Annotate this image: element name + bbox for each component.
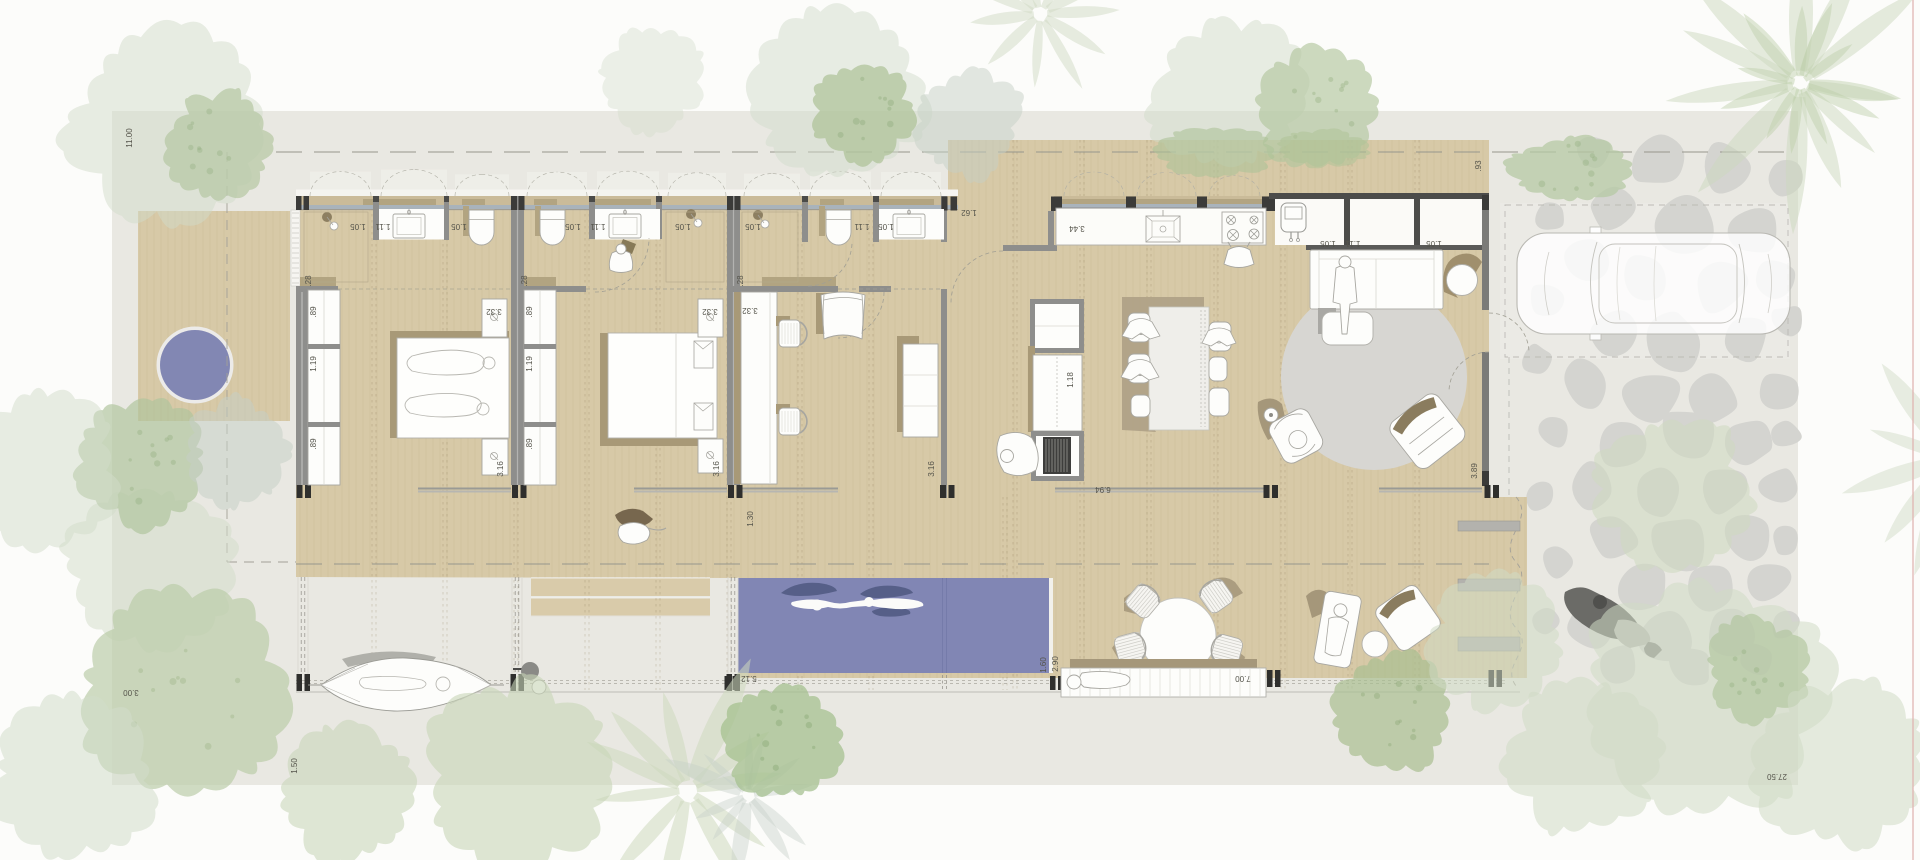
svg-text:.89: .89 bbox=[525, 438, 534, 450]
svg-text:1.50: 1.50 bbox=[290, 758, 299, 774]
svg-text:.89: .89 bbox=[525, 306, 534, 318]
svg-text:1.05: 1.05 bbox=[350, 222, 366, 231]
svg-text:3.44: 3.44 bbox=[1069, 224, 1085, 233]
svg-text:1.05: 1.05 bbox=[451, 222, 467, 231]
svg-text:.28: .28 bbox=[736, 275, 745, 287]
svg-text:.93: .93 bbox=[1474, 160, 1483, 172]
svg-text:3.89: 3.89 bbox=[1470, 463, 1479, 479]
svg-text:.89: .89 bbox=[309, 306, 318, 318]
svg-text:3.16: 3.16 bbox=[927, 461, 936, 477]
svg-text:1.05: 1.05 bbox=[878, 222, 894, 231]
svg-text:.89: .89 bbox=[309, 438, 318, 450]
svg-text:1.11: 1.11 bbox=[854, 222, 870, 231]
svg-text:1.30: 1.30 bbox=[746, 511, 755, 527]
svg-text:1.05: 1.05 bbox=[1320, 239, 1336, 248]
svg-text:6.94: 6.94 bbox=[1095, 485, 1111, 494]
svg-text:1.18: 1.18 bbox=[1066, 372, 1075, 388]
svg-text:11.00: 11.00 bbox=[125, 128, 134, 148]
svg-text:3.32: 3.32 bbox=[702, 307, 718, 316]
svg-text:3.32: 3.32 bbox=[742, 306, 758, 315]
svg-text:1.60: 1.60 bbox=[1039, 657, 1048, 673]
svg-text:1.05: 1.05 bbox=[745, 222, 761, 231]
svg-text:1.19: 1.19 bbox=[525, 356, 534, 372]
svg-text:1.05: 1.05 bbox=[675, 222, 691, 231]
svg-text:2.90: 2.90 bbox=[1051, 656, 1060, 672]
svg-text:1.11: 1.11 bbox=[375, 222, 391, 231]
svg-text:7.00: 7.00 bbox=[1235, 674, 1251, 683]
svg-text:.28: .28 bbox=[520, 275, 529, 287]
svg-text:1.19: 1.19 bbox=[309, 356, 318, 372]
svg-text:3.00: 3.00 bbox=[123, 688, 139, 697]
svg-text:3.32: 3.32 bbox=[486, 307, 502, 316]
svg-text:1.62: 1.62 bbox=[961, 208, 977, 217]
svg-text:3.16: 3.16 bbox=[712, 461, 721, 477]
svg-text:1.11: 1.11 bbox=[590, 222, 606, 231]
svg-text:3.16: 3.16 bbox=[496, 461, 505, 477]
svg-text:1.11: 1.11 bbox=[1345, 239, 1361, 248]
svg-text:1.05: 1.05 bbox=[1426, 239, 1442, 248]
svg-text:5.12: 5.12 bbox=[741, 674, 757, 683]
svg-text:1.05: 1.05 bbox=[565, 222, 581, 231]
svg-text:.28: .28 bbox=[304, 275, 313, 287]
svg-text:27.50: 27.50 bbox=[1766, 772, 1787, 781]
